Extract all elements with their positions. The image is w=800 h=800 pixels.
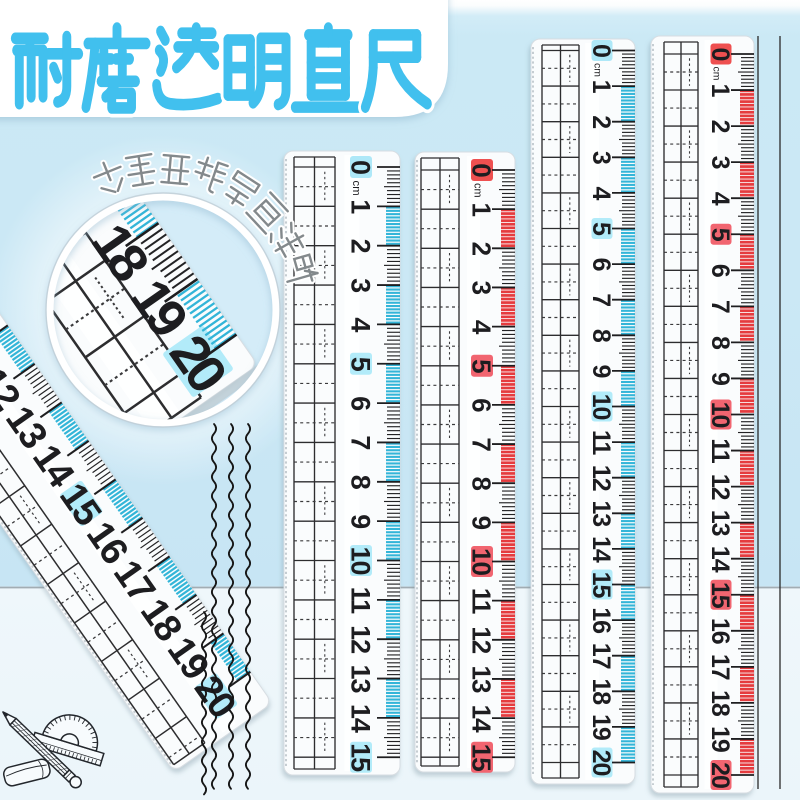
svg-text:18: 18 [587, 678, 615, 705]
svg-text:cm: cm [471, 183, 483, 198]
svg-text:18: 18 [706, 690, 734, 717]
svg-text:12: 12 [706, 474, 734, 500]
svg-text:1: 1 [587, 80, 615, 94]
svg-text:19: 19 [706, 726, 734, 752]
svg-text:cm: cm [592, 63, 604, 77]
svg-text:14: 14 [587, 536, 615, 563]
svg-text:1: 1 [345, 199, 375, 214]
svg-text:8: 8 [345, 475, 375, 490]
svg-text:16: 16 [587, 607, 615, 633]
svg-text:15: 15 [587, 572, 615, 599]
svg-text:6: 6 [345, 396, 375, 411]
svg-text:13: 13 [587, 500, 615, 526]
svg-text:cm: cm [711, 67, 723, 81]
svg-text:9: 9 [587, 364, 615, 377]
svg-text:9: 9 [345, 514, 375, 529]
svg-text:19: 19 [587, 714, 615, 740]
svg-text:10: 10 [706, 402, 734, 428]
svg-text:11: 11 [345, 587, 375, 615]
svg-text:11: 11 [706, 438, 734, 464]
svg-text:cm: cm [350, 181, 362, 196]
svg-text:5: 5 [706, 228, 734, 242]
svg-text:13: 13 [706, 510, 734, 536]
svg-text:10: 10 [345, 546, 375, 574]
svg-text:20: 20 [587, 750, 615, 776]
svg-text:1: 1 [706, 84, 734, 98]
svg-text:3: 3 [587, 151, 615, 164]
svg-text:9: 9 [706, 372, 734, 385]
svg-text:15: 15 [706, 582, 734, 609]
svg-text:5: 5 [587, 222, 615, 236]
svg-text:2: 2 [587, 115, 615, 128]
svg-text:7: 7 [345, 435, 375, 449]
svg-text:17: 17 [706, 654, 734, 680]
svg-text:12: 12 [345, 625, 375, 653]
svg-text:12: 12 [587, 465, 615, 491]
svg-text:4: 4 [706, 192, 734, 206]
svg-text:3: 3 [345, 278, 375, 293]
svg-text:8: 8 [587, 329, 615, 343]
svg-text:20: 20 [706, 762, 734, 788]
svg-text:4: 4 [587, 186, 615, 200]
svg-text:11: 11 [587, 430, 615, 456]
svg-text:6: 6 [587, 258, 615, 271]
svg-text:10: 10 [587, 394, 615, 420]
svg-text:16: 16 [706, 618, 734, 644]
svg-text:2: 2 [345, 239, 375, 253]
svg-text:8: 8 [706, 336, 734, 350]
svg-text:4: 4 [345, 317, 375, 332]
svg-text:14: 14 [706, 546, 734, 573]
svg-text:5: 5 [345, 357, 375, 372]
svg-text:0: 0 [587, 44, 615, 57]
svg-text:6: 6 [706, 264, 734, 277]
svg-text:0: 0 [706, 48, 734, 61]
svg-text:13: 13 [345, 664, 375, 693]
svg-text:2: 2 [706, 120, 734, 133]
svg-text:7: 7 [587, 293, 615, 306]
svg-text:17: 17 [587, 643, 615, 669]
svg-text:15: 15 [345, 743, 375, 772]
svg-text:14: 14 [345, 704, 375, 733]
svg-text:0: 0 [345, 160, 375, 174]
svg-text:7: 7 [706, 300, 734, 313]
svg-text:3: 3 [706, 156, 734, 169]
